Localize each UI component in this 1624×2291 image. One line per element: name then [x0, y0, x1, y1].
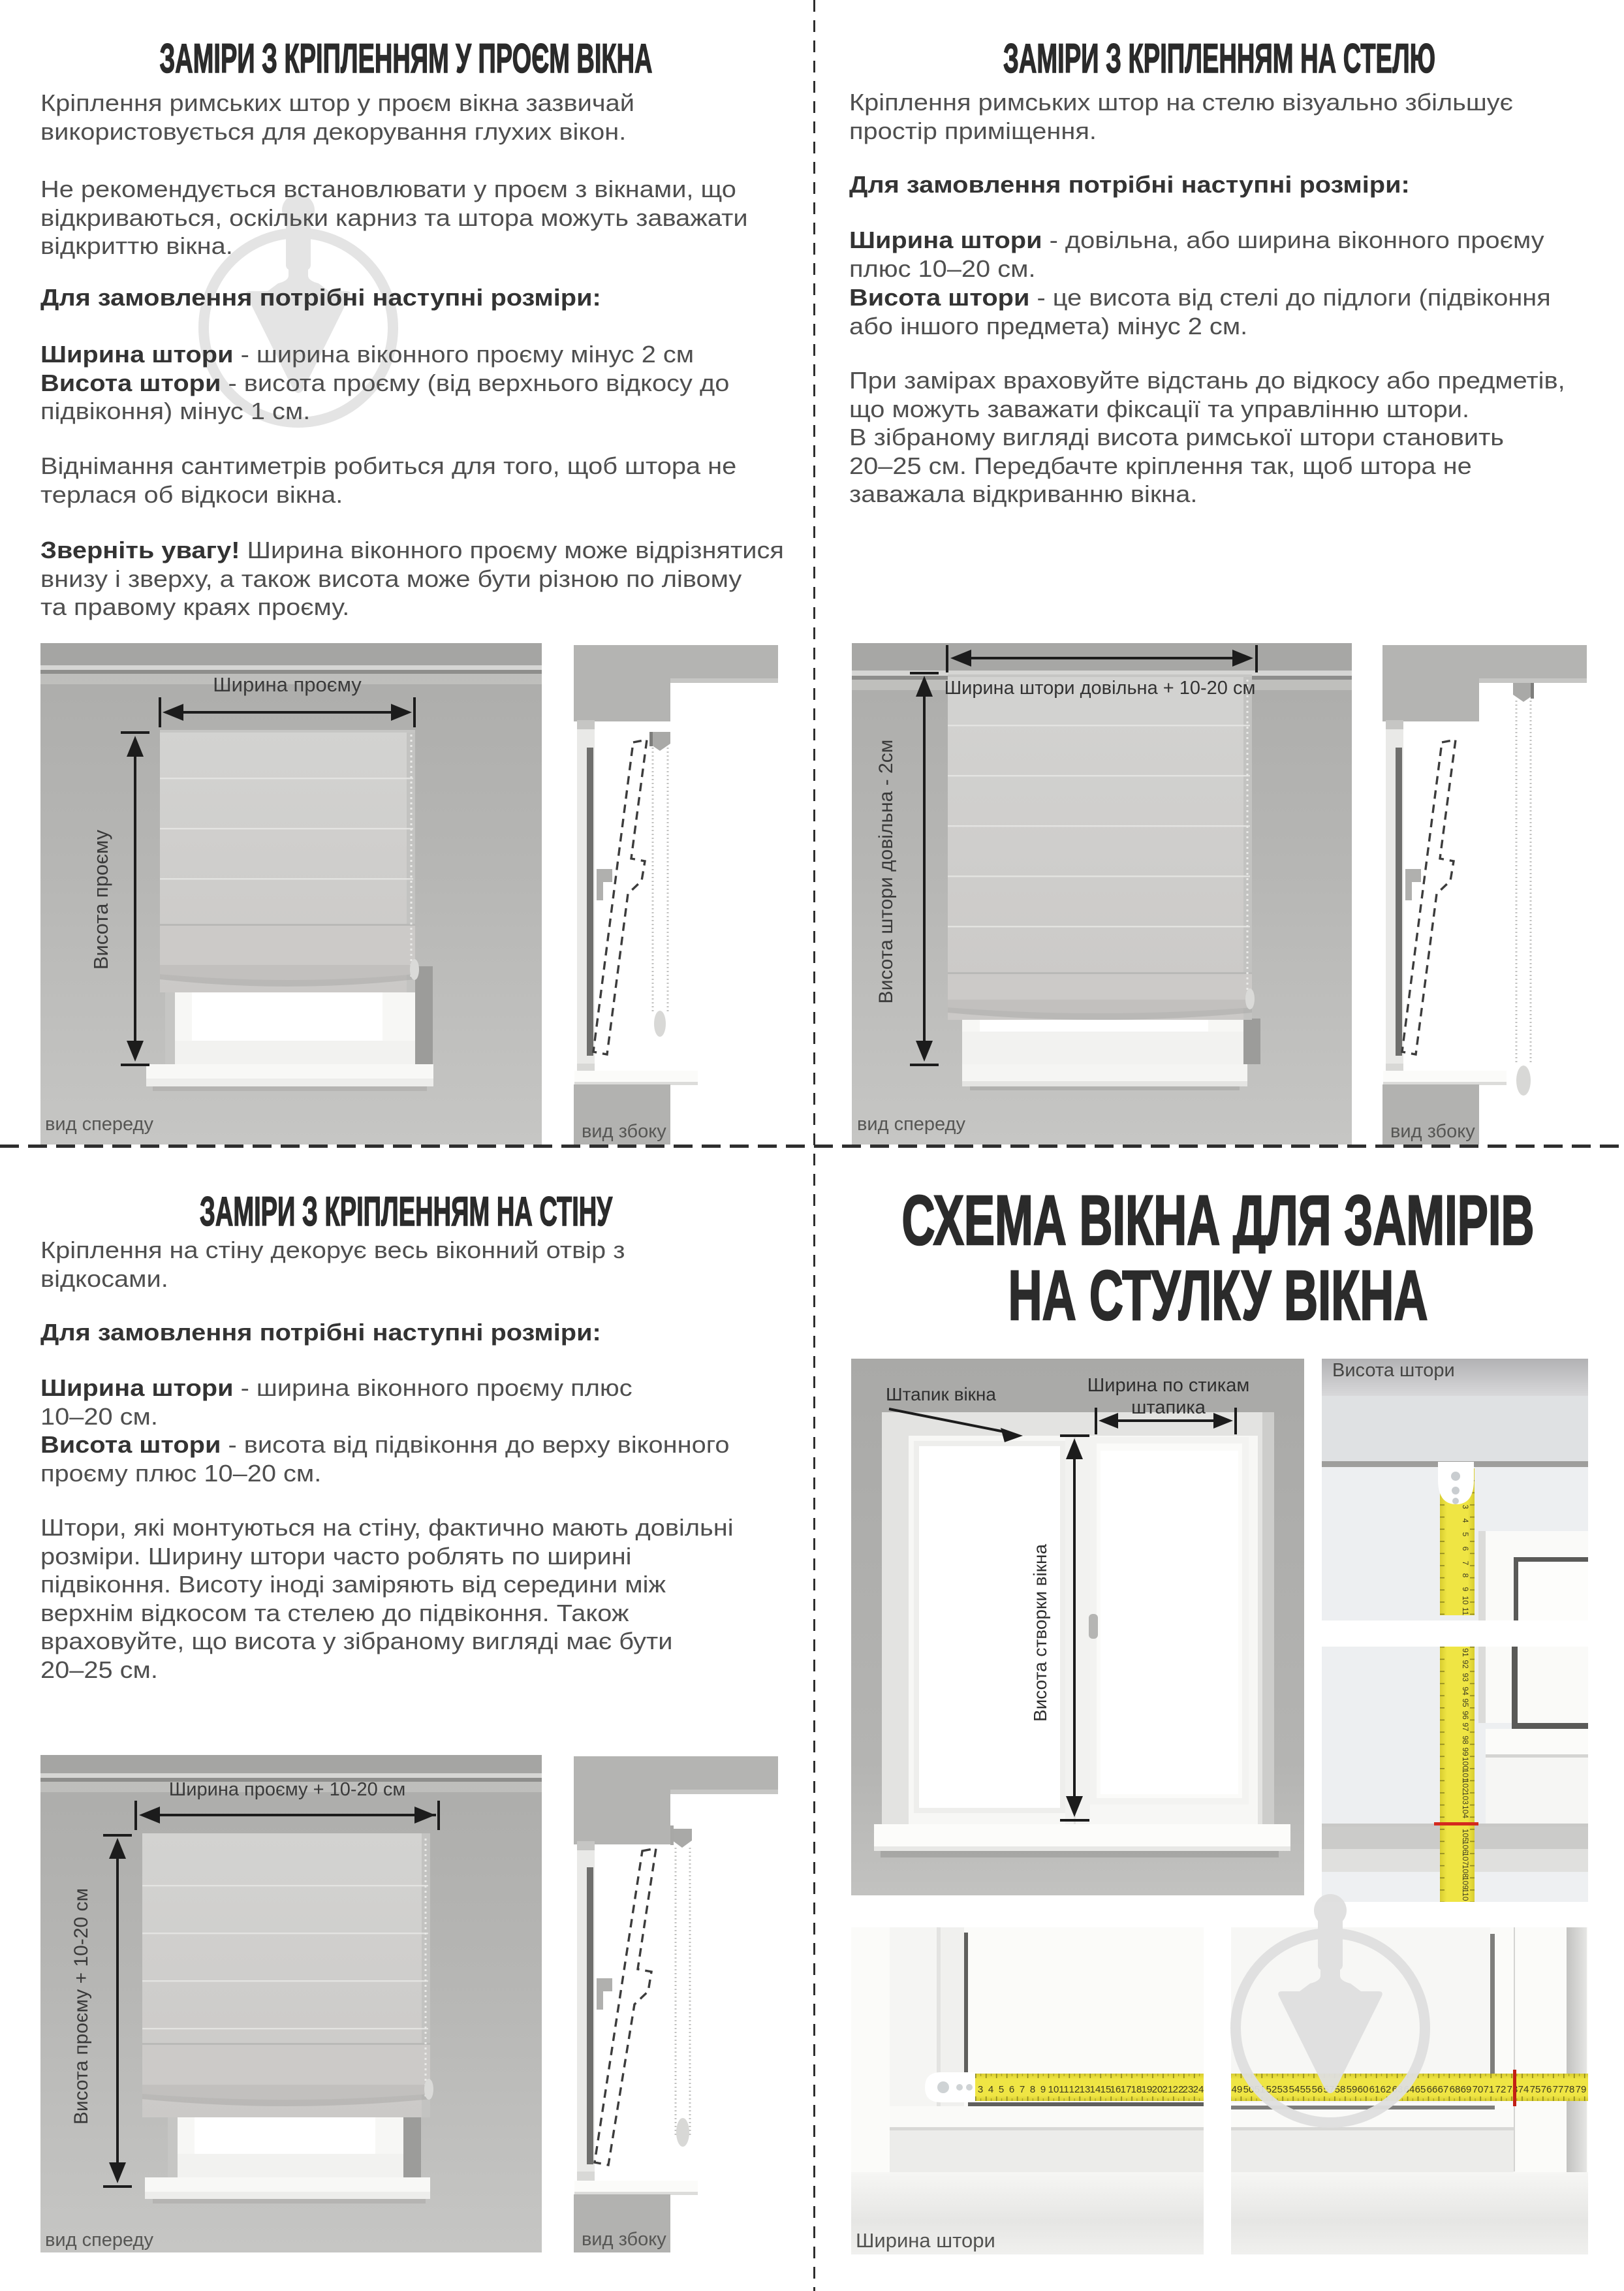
svg-text:Ширина штори довільна + 10-20: Ширина штори довільна + 10-20 см — [945, 678, 1256, 699]
svg-text:13: 13 — [1080, 2084, 1091, 2095]
svg-text:68: 68 — [1450, 2084, 1461, 2095]
svg-text:9: 9 — [1040, 2084, 1046, 2095]
svg-text:110: 110 — [1461, 1888, 1470, 1901]
svg-text:94: 94 — [1461, 1686, 1470, 1696]
svg-text:104: 104 — [1461, 1805, 1470, 1818]
svg-text:7: 7 — [1020, 2084, 1025, 2095]
svg-text:17: 17 — [1121, 2084, 1132, 2095]
svg-text:вид спереду: вид спереду — [857, 1114, 965, 1135]
svg-text:14: 14 — [1090, 2084, 1101, 2095]
svg-text:9: 9 — [1461, 1587, 1470, 1592]
svg-text:95: 95 — [1461, 1698, 1470, 1707]
svg-text:Висота проєму: Висота проєму — [89, 829, 112, 970]
svg-text:69: 69 — [1461, 2084, 1472, 2095]
svg-text:3: 3 — [1461, 1505, 1470, 1509]
svg-text:103: 103 — [1461, 1792, 1470, 1805]
svg-text:Ширина проєму: Ширина проєму — [213, 673, 362, 696]
svg-text:НА СТУЛКУ ВІКНА: НА СТУЛКУ ВІКНА — [1008, 1257, 1428, 1329]
svg-text:20: 20 — [1152, 2084, 1163, 2095]
svg-text:11: 11 — [1059, 2084, 1069, 2095]
svg-text:99: 99 — [1461, 1747, 1470, 1756]
svg-text:77: 77 — [1553, 2084, 1564, 2095]
svg-text:97: 97 — [1461, 1722, 1470, 1731]
svg-text:75: 75 — [1530, 2084, 1541, 2095]
svg-text:21: 21 — [1163, 2084, 1174, 2095]
svg-text:5: 5 — [1461, 1532, 1470, 1537]
svg-text:8: 8 — [1030, 2084, 1035, 2095]
svg-text:Ширина по стикам: Ширина по стикам — [1087, 1375, 1250, 1396]
svg-text:76: 76 — [1541, 2084, 1552, 2095]
svg-text:102: 102 — [1461, 1779, 1470, 1792]
svg-text:4: 4 — [988, 2084, 993, 2095]
svg-text:вид збоку: вид збоку — [582, 2229, 666, 2250]
svg-text:71: 71 — [1484, 2084, 1495, 2095]
svg-text:ЗАМІРИ З КРІПЛЕННЯМ НА СТІНУ: ЗАМІРИ З КРІПЛЕННЯМ НА СТІНУ — [200, 1189, 612, 1235]
svg-text:Висота штори: Висота штори — [1332, 1360, 1455, 1381]
svg-text:19: 19 — [1142, 2084, 1153, 2095]
svg-text:7: 7 — [1461, 1561, 1470, 1566]
svg-text:93: 93 — [1461, 1673, 1470, 1682]
svg-text:штапика: штапика — [1131, 1397, 1206, 1418]
svg-text:ЗАМІРИ З КРІПЛЕННЯМ НА СТЕЛЮ: ЗАМІРИ З КРІПЛЕННЯМ НА СТЕЛЮ — [1003, 36, 1435, 82]
svg-text:91: 91 — [1461, 1648, 1470, 1657]
svg-text:16: 16 — [1110, 2084, 1121, 2095]
svg-text:10: 10 — [1461, 1596, 1470, 1605]
svg-text:Ширина проєму + 10-20 см: Ширина проєму + 10-20 см — [169, 1779, 406, 1800]
svg-text:ЗАМІРИ З КРІПЛЕННЯМ У ПРОЄМ ВІ: ЗАМІРИ З КРІПЛЕННЯМ У ПРОЄМ ВІКНА — [160, 36, 653, 82]
svg-text:6: 6 — [1461, 1547, 1470, 1551]
svg-text:3: 3 — [978, 2084, 983, 2095]
svg-text:23: 23 — [1183, 2084, 1194, 2095]
svg-text:вид збоку: вид збоку — [582, 1121, 666, 1142]
svg-text:12: 12 — [1069, 2084, 1080, 2095]
svg-text:Ширина штори: Ширина штори — [856, 2229, 995, 2252]
svg-text:18: 18 — [1131, 2084, 1142, 2095]
svg-text:98: 98 — [1461, 1735, 1470, 1745]
svg-text:6: 6 — [1009, 2084, 1014, 2095]
svg-text:Штапик вікна: Штапик вікна — [886, 1384, 996, 1404]
svg-text:8: 8 — [1461, 1573, 1470, 1578]
svg-text:Висота створки вікна: Висота створки вікна — [1030, 1544, 1050, 1722]
svg-text:вид збоку: вид збоку — [1390, 1121, 1475, 1142]
svg-text:вид спереду: вид спереду — [45, 1114, 153, 1135]
svg-text:10: 10 — [1048, 2084, 1059, 2095]
svg-text:5: 5 — [999, 2084, 1004, 2095]
svg-text:24: 24 — [1193, 2084, 1204, 2095]
svg-text:109: 109 — [1461, 1876, 1470, 1889]
svg-text:78: 78 — [1564, 2084, 1575, 2095]
svg-text:вид спереду: вид спереду — [45, 2230, 153, 2251]
svg-text:Висота проєму + 10-20 см: Висота проєму + 10-20 см — [70, 1888, 92, 2125]
svg-text:Висота штори довільна - 2см: Висота штори довільна - 2см — [875, 740, 897, 1004]
svg-text:70: 70 — [1473, 2084, 1484, 2095]
svg-text:72: 72 — [1495, 2084, 1507, 2095]
svg-text:4: 4 — [1461, 1519, 1470, 1523]
svg-text:СХЕМА ВІКНА ДЛЯ ЗАМІРІВ: СХЕМА ВІКНА ДЛЯ ЗАМІРІВ — [902, 1182, 1535, 1254]
svg-text:92: 92 — [1461, 1660, 1470, 1669]
svg-text:79: 79 — [1576, 2084, 1587, 2095]
svg-text:107: 107 — [1461, 1852, 1470, 1865]
svg-text:11: 11 — [1461, 1607, 1470, 1616]
svg-text:96: 96 — [1461, 1711, 1470, 1720]
svg-text:74: 74 — [1518, 2084, 1529, 2095]
